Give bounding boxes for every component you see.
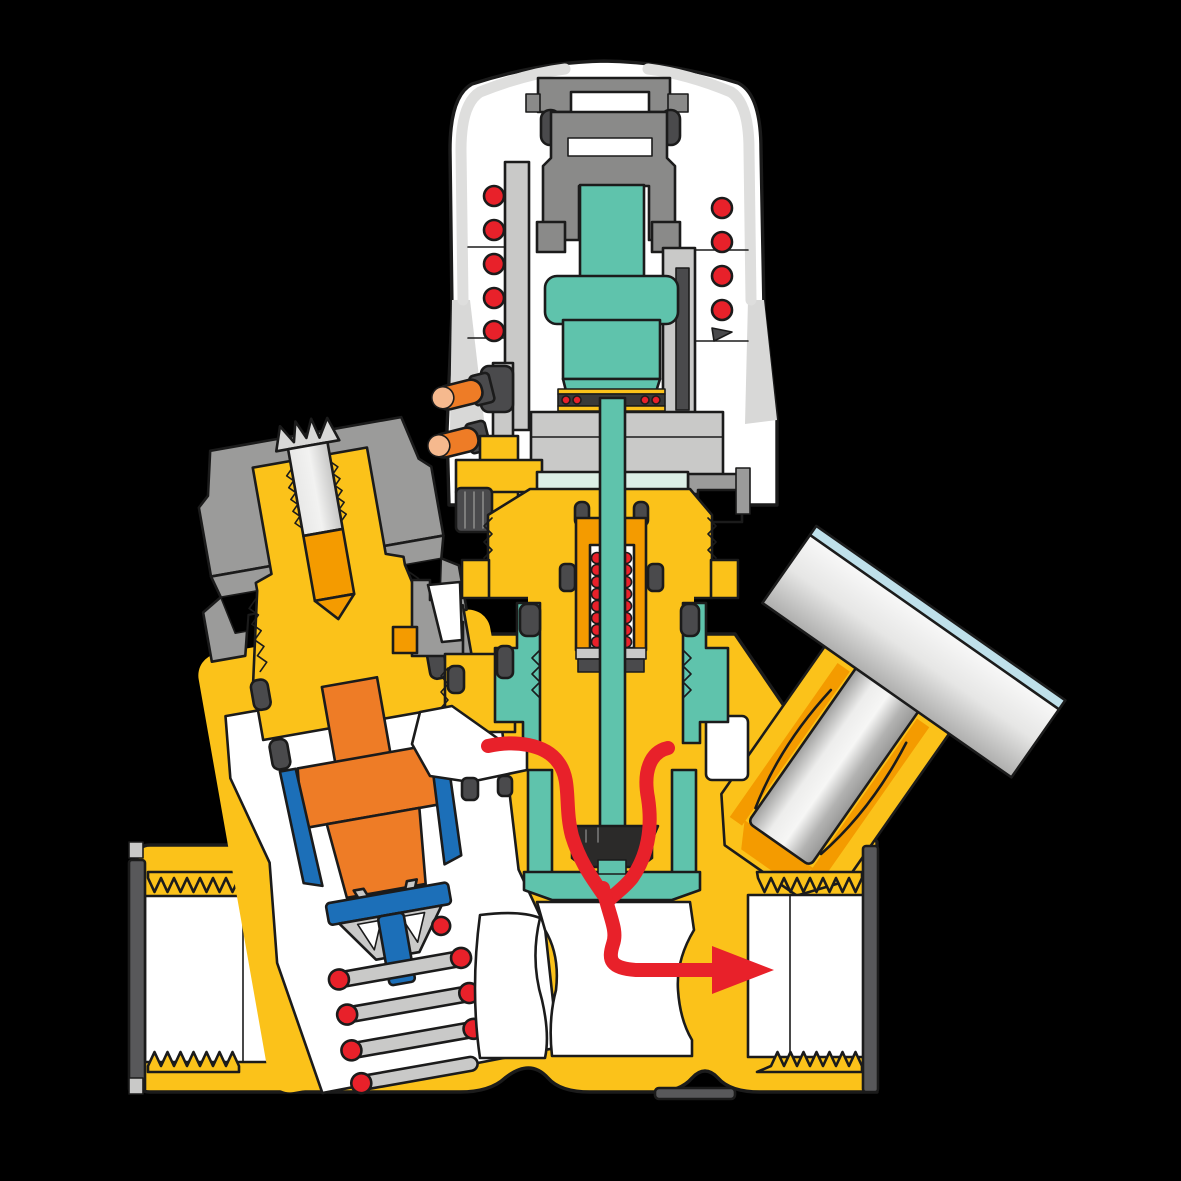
cage-wall-left xyxy=(528,770,552,878)
outlet-end-cap xyxy=(863,846,878,1092)
wax-stem xyxy=(600,398,625,868)
cage-wall-right xyxy=(672,770,696,878)
stem-tip xyxy=(598,860,626,874)
cage-side-notch xyxy=(706,716,748,780)
inlet-end-cap xyxy=(129,860,145,1092)
outlet-bore xyxy=(748,895,867,1057)
valve-cutaway-diagram xyxy=(0,0,1181,1181)
piston-neck xyxy=(322,677,391,764)
left-chamber xyxy=(475,913,547,1058)
diagram-canvas xyxy=(0,0,1181,1181)
